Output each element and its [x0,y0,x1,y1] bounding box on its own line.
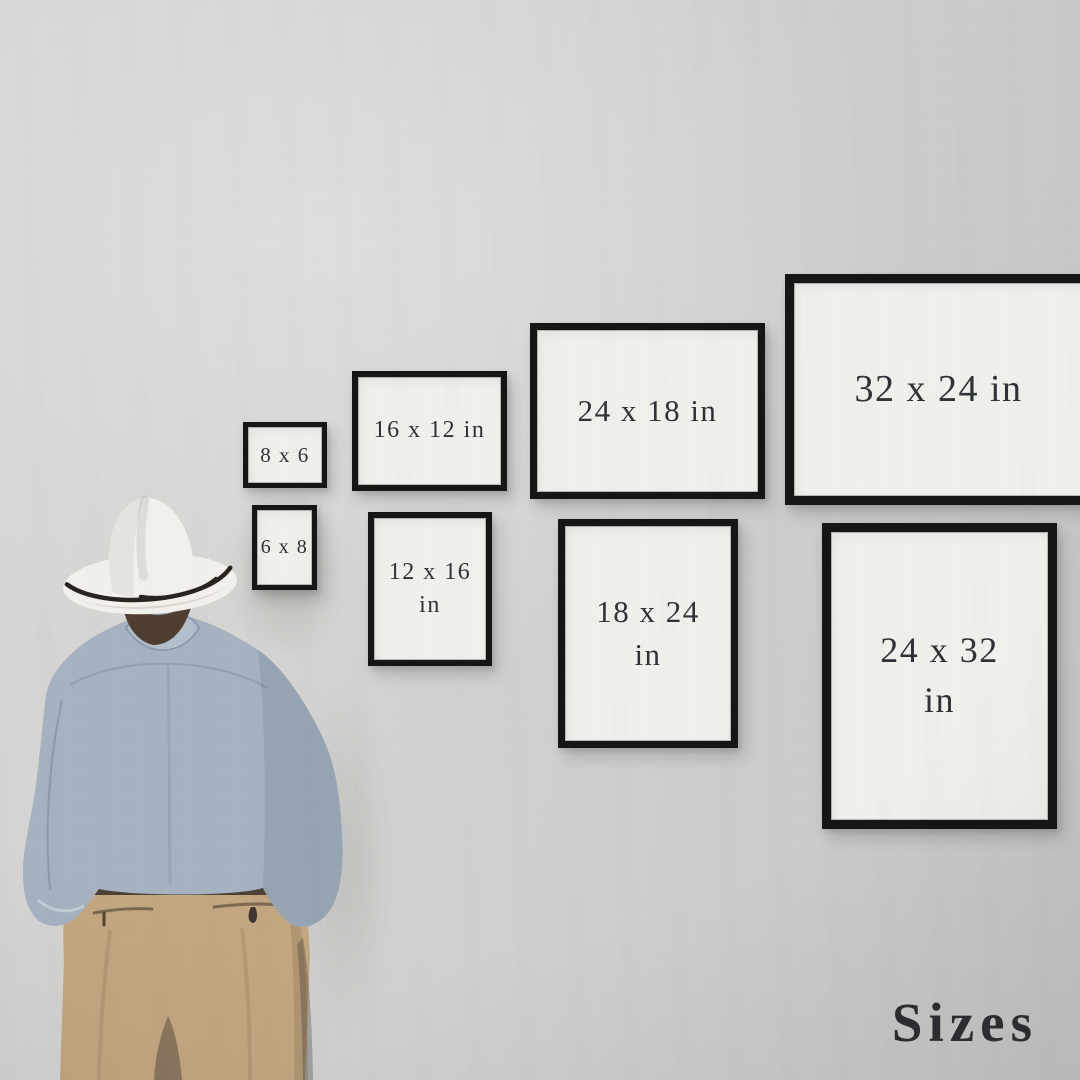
frame-12x16-size-line1: 12 x 16 [389,556,472,589]
frame-12x16-size-label: 12 x 16 in [389,556,472,622]
frame-24x18: 24 x 18 in [530,323,765,499]
frame-18x24: 18 x 24 in [558,519,738,748]
gallery-wall-scene: 8 x 6 16 x 12 in 24 x 18 in 32 x 24 in 6… [0,0,1080,1080]
frame-16x12-mat: 16 x 12 in [358,377,501,485]
frame-12x16: 12 x 16 in [368,512,492,666]
frame-24x32-size-line1: 24 x 32 [880,626,999,676]
frame-18x24-size-line1: 18 x 24 [596,591,700,634]
frame-24x32: 24 x 32 in [822,523,1057,829]
frame-24x32-size-label: 24 x 32 in [880,626,999,725]
frame-24x32-mat: 24 x 32 in [831,532,1048,820]
frame-24x18-size-label: 24 x 18 in [578,390,718,433]
shirt-back-crease [168,665,170,885]
hat [59,493,239,619]
frame-32x24-mat: 32 x 24 in [794,283,1080,496]
frame-18x24-mat: 18 x 24 in [565,526,731,741]
man-figure [0,460,350,1080]
frame-12x16-size-line2: in [419,589,441,622]
frame-12x16-mat: 12 x 16 in [374,518,486,660]
shirt-right-shade [258,650,343,927]
frame-32x24: 32 x 24 in [785,274,1080,505]
frame-32x24-size-label: 32 x 24 in [854,363,1022,415]
frame-16x12: 16 x 12 in [352,371,507,491]
frame-24x32-size-line2: in [924,676,955,726]
sizes-watermark: Sizes [892,991,1038,1054]
frame-16x12-size-label: 16 x 12 in [374,414,486,447]
frame-18x24-size-line2: in [634,634,661,677]
frame-18x24-size-label: 18 x 24 in [596,591,700,677]
frame-24x18-mat: 24 x 18 in [537,330,758,492]
